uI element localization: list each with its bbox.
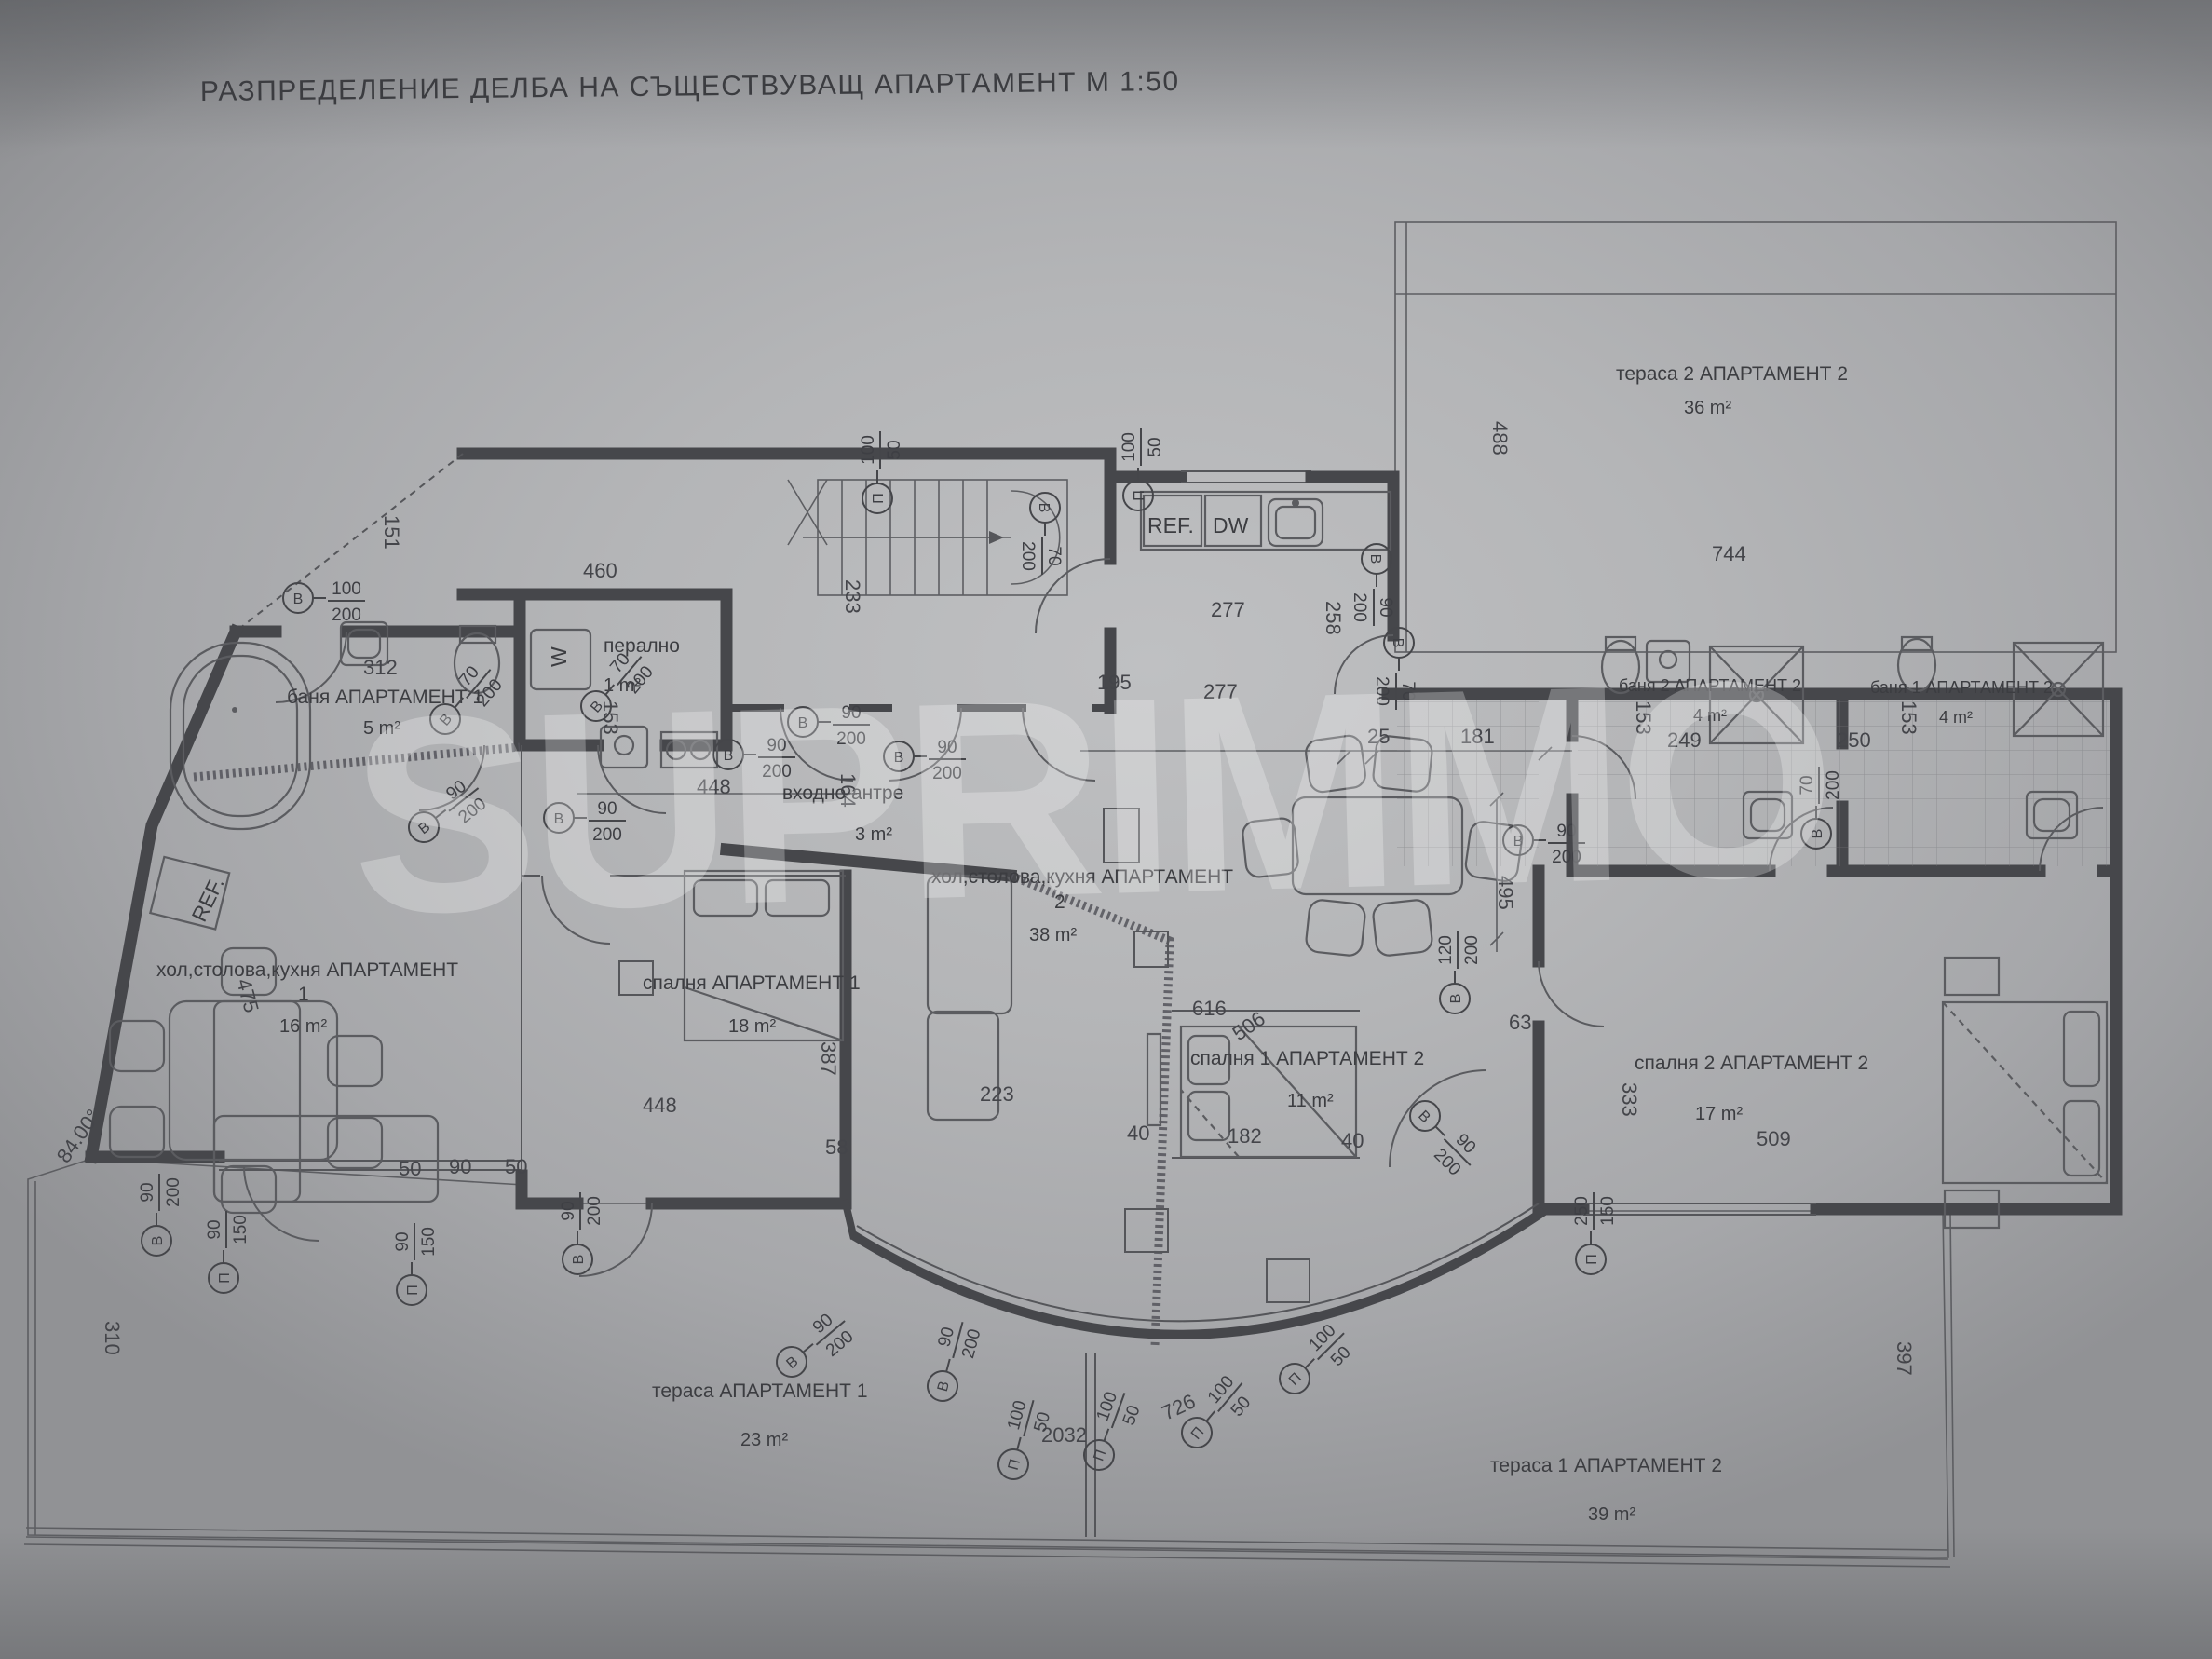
dimension-label: 258 xyxy=(1322,601,1345,635)
dimension-label: 233 xyxy=(841,579,864,614)
room-label: тераса АПАРТАМЕНТ 1 xyxy=(652,1380,868,1402)
opening-width: 90 xyxy=(393,1231,413,1251)
dimension-label: 333 xyxy=(1618,1082,1641,1117)
opening-height: 200 xyxy=(332,605,361,625)
opening-letter: В xyxy=(1367,554,1383,564)
dimension-label: 153 xyxy=(1897,700,1920,735)
fridge2-label: REF. xyxy=(1147,513,1194,537)
opening-letter: В xyxy=(1448,994,1464,1004)
room-label: спалня 1 АПАРТАМЕНТ 2 xyxy=(1190,1048,1424,1069)
kitchen-apt2: REF. DW xyxy=(1141,492,1391,550)
dimension-label: 387 xyxy=(817,1041,840,1076)
opening-letter: П xyxy=(405,1285,421,1296)
opening-letter: В xyxy=(935,1380,953,1394)
opening-letter: В xyxy=(293,592,304,607)
opening-width: 90 xyxy=(205,1219,224,1239)
opening-width: 100 xyxy=(1120,432,1139,462)
opening-letter: П xyxy=(1091,1448,1109,1463)
opening-width: 90 xyxy=(1376,597,1395,617)
dimension-label: 277 xyxy=(1211,598,1245,621)
opening-letter: В xyxy=(1415,1108,1433,1126)
opening-marker: П10050 xyxy=(1077,1386,1147,1478)
dimension-label: 90 xyxy=(449,1155,471,1178)
opening-height: 50 xyxy=(885,440,904,459)
dimension-label: 40 xyxy=(1341,1129,1364,1152)
photographed-floor-plan: РАЗПРЕДЕЛЕНИЕ ДЕЛБА НА СЪЩЕСТВУВАЩ АПАРТ… xyxy=(0,0,2212,1659)
room-label: спалня 2 АПАРТАМЕНТ 2 xyxy=(1635,1053,1868,1074)
opening-height: 200 xyxy=(585,1196,604,1226)
room-area: 39 m² xyxy=(1588,1504,1635,1525)
opening-width: 100 xyxy=(859,435,878,465)
opening-width: 70 xyxy=(1044,546,1064,565)
dimension-label: 40 xyxy=(1127,1122,1149,1145)
bottom-terraces: тераса АПАРТАМЕНТ 1 23 m² тераса 1 АПАРТ… xyxy=(24,1159,1954,1567)
dimension-label: 726 xyxy=(1159,1389,1200,1424)
opening-height: 200 xyxy=(1018,541,1038,571)
opening-letter: П xyxy=(1188,1424,1207,1443)
dimension-label: 744 xyxy=(1712,542,1746,565)
opening-width: 90 xyxy=(1452,1130,1480,1158)
opening-height: 200 xyxy=(1350,592,1369,622)
room-area: 17 m² xyxy=(1695,1104,1743,1124)
opening-marker: П10050 xyxy=(1120,428,1165,510)
opening-letter: В xyxy=(1036,503,1052,513)
opening-letter: П xyxy=(1006,1458,1024,1473)
opening-letter: П xyxy=(1286,1370,1305,1389)
dimension-label: 182 xyxy=(1228,1124,1262,1148)
opening-width: 90 xyxy=(138,1182,157,1202)
room-label: 1 xyxy=(298,984,309,1005)
opening-marker: В90200 xyxy=(768,1304,861,1392)
opening-width: 90 xyxy=(559,1201,578,1220)
dimension-label: 475 xyxy=(232,976,264,1015)
opening-marker: П10050 xyxy=(1271,1318,1362,1408)
opening-marker: П90150 xyxy=(393,1223,439,1305)
opening-letter: В xyxy=(783,1353,801,1372)
bed2-apt2 xyxy=(1943,958,2107,1228)
opening-marker: П250150 xyxy=(1572,1192,1618,1274)
dimension-label: 460 xyxy=(583,559,617,582)
dimension-label: 448 xyxy=(643,1094,677,1117)
opening-height: 200 xyxy=(958,1327,984,1361)
dimension-label: 509 xyxy=(1757,1127,1791,1150)
opening-height: 200 xyxy=(164,1177,183,1207)
room-label: тераса 2 АПАРТАМЕНТ 2 xyxy=(1616,363,1848,385)
opening-width: 100 xyxy=(332,579,361,599)
dishwasher-label: DW xyxy=(1213,513,1249,537)
opening-height: 50 xyxy=(1146,437,1165,456)
dimension-label: 616 xyxy=(1192,997,1227,1020)
floor-plan-drawing: РАЗПРЕДЕЛЕНИЕ ДЕЛБА НА СЪЩЕСТВУВАЩ АПАРТ… xyxy=(0,0,2212,1659)
opening-letter: П xyxy=(1132,490,1147,501)
opening-letter: П xyxy=(871,493,887,504)
opening-letter: П xyxy=(217,1272,233,1284)
watermark-logo: SUPRIMMO xyxy=(347,621,1832,972)
dimension-label: 397 xyxy=(1893,1341,1916,1376)
room-label: спалня АПАРТАМЕНТ 1 xyxy=(643,972,861,994)
opening-letter: В xyxy=(571,1255,587,1265)
staircase xyxy=(788,480,1067,595)
room-area: 23 m² xyxy=(740,1430,788,1450)
dimension-label: 488 xyxy=(1488,421,1512,456)
opening-height: 150 xyxy=(1598,1196,1618,1226)
dimension-label: 310 xyxy=(101,1321,124,1355)
room-area: 16 m² xyxy=(279,1016,327,1037)
opening-width: 90 xyxy=(934,1325,958,1349)
room-area: 18 m² xyxy=(728,1016,776,1037)
room-label: баня 1 АПАРТАМЕНТ 2 xyxy=(1870,678,2053,697)
opening-marker: В70200 xyxy=(1018,493,1064,575)
opening-letter: В xyxy=(150,1236,166,1246)
plan-title: РАЗПРЕДЕЛЕНИЕ ДЕЛБА НА СЪЩЕСТВУВАЩ АПАРТ… xyxy=(200,66,1180,107)
opening-height: 50 xyxy=(1120,1403,1145,1428)
room-area: 4 m² xyxy=(1939,708,1973,727)
opening-width: 100 xyxy=(1093,1389,1122,1423)
room-area: 36 m² xyxy=(1684,398,1731,418)
dimension-label: 63 xyxy=(1509,1011,1531,1034)
opening-width: 250 xyxy=(1572,1196,1592,1226)
dimension-label: 50 xyxy=(505,1155,527,1178)
opening-height: 150 xyxy=(231,1215,251,1244)
opening-letter: П xyxy=(1584,1254,1600,1265)
room-area: 11 m² xyxy=(1287,1091,1334,1111)
opening-marker: П90150 xyxy=(205,1211,251,1293)
dimension-label: 506 xyxy=(1228,1007,1269,1046)
opening-marker: В90200 xyxy=(921,1316,986,1407)
room-label: тераса 1 АПАРТАМЕНТ 2 xyxy=(1490,1455,1722,1476)
opening-height: 150 xyxy=(419,1227,439,1257)
dimension-label: 250 xyxy=(1837,728,1871,752)
opening-marker: В90200 xyxy=(1395,1093,1486,1183)
dimension-label: 50 xyxy=(399,1157,421,1180)
opening-marker: В90200 xyxy=(138,1174,183,1256)
opening-marker: В100200 xyxy=(283,579,365,625)
dimension-label: 223 xyxy=(980,1082,1014,1106)
dimension-label: 58 xyxy=(825,1135,848,1159)
dimension-label: 151 xyxy=(380,515,403,550)
opening-width: 90 xyxy=(809,1310,837,1338)
